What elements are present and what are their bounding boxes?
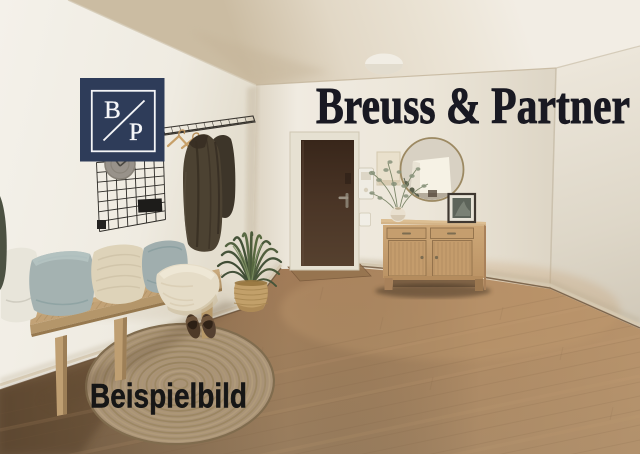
svg-text:P: P (129, 119, 143, 146)
svg-text:Beispielbild: Beispielbild (90, 378, 247, 416)
svg-text:Breuss & Partner: Breuss & Partner (316, 78, 630, 135)
svg-text:B: B (104, 97, 121, 124)
